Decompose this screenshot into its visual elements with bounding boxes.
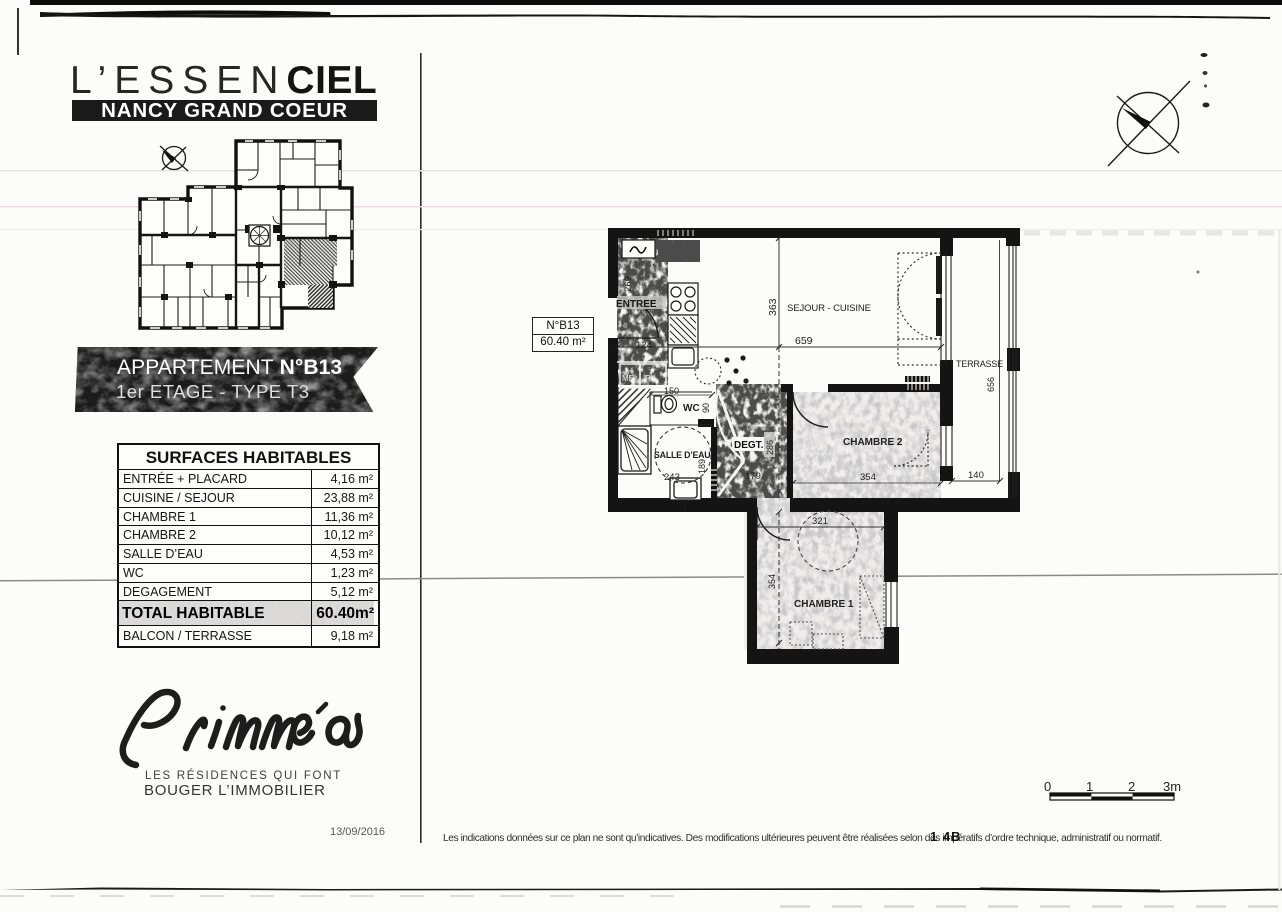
svg-text:TERRASSE: TERRASSE	[956, 359, 1003, 369]
svg-text:90: 90	[701, 403, 711, 413]
svg-text:354: 354	[767, 574, 777, 589]
svg-text:150: 150	[664, 386, 679, 396]
svg-text:354: 354	[860, 472, 876, 483]
svg-text:321: 321	[812, 516, 828, 527]
svg-text:286: 286	[765, 440, 775, 455]
svg-text:CHAMBRE 1: CHAMBRE 1	[794, 599, 854, 610]
svg-text:189: 189	[697, 459, 707, 474]
svg-text:363: 363	[767, 298, 779, 316]
svg-text:ENTREE: ENTREE	[616, 299, 657, 310]
svg-text:PL: PL	[645, 373, 656, 383]
svg-text:SALLE D’EAU: SALLE D’EAU	[654, 450, 710, 460]
svg-text:SEJOUR - CUISINE: SEJOUR - CUISINE	[787, 303, 871, 314]
svg-text:124: 124	[636, 340, 652, 351]
svg-text:CHAMBRE 2: CHAMBRE 2	[843, 437, 903, 448]
svg-text:179: 179	[745, 471, 761, 482]
svg-text:659: 659	[795, 335, 813, 347]
svg-text:WC: WC	[683, 403, 700, 414]
svg-text:140: 140	[968, 470, 984, 481]
svg-text:ME: ME	[622, 374, 634, 383]
svg-text:2: 2	[1128, 779, 1135, 794]
svg-text:656: 656	[986, 377, 996, 392]
svg-text:3m: 3m	[1163, 779, 1181, 794]
svg-text:1: 1	[1086, 779, 1093, 794]
svg-text:DEGT.: DEGT.	[734, 440, 764, 451]
svg-text:0: 0	[1044, 779, 1051, 794]
svg-text:269: 269	[623, 276, 634, 292]
svg-text:243: 243	[664, 472, 680, 483]
